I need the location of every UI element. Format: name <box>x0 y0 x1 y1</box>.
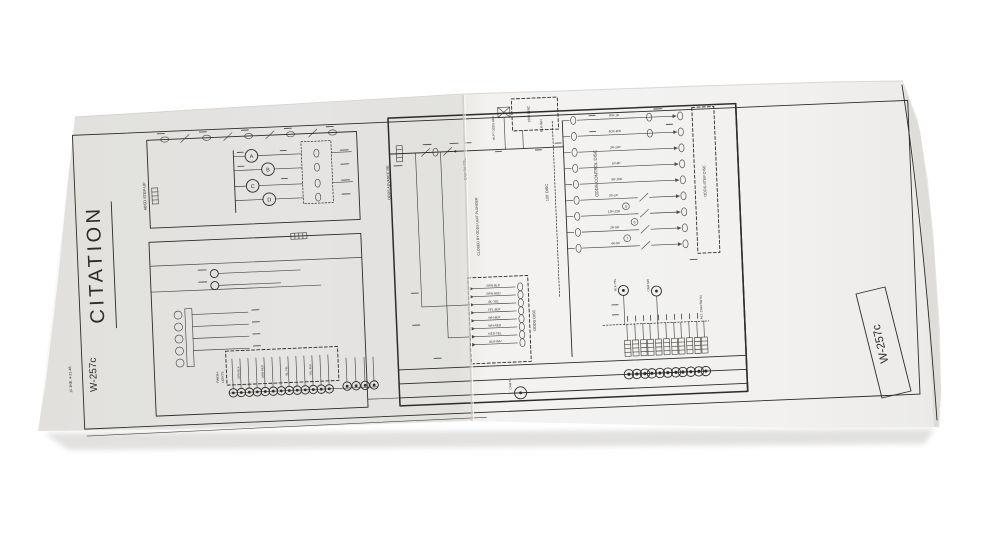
relay-c-label: C <box>251 184 255 190</box>
wire-label-7: BLK-WH <box>489 339 502 344</box>
ladder-label-7: 2R-5R <box>609 225 620 229</box>
ladder-label-5: 2R-1R <box>608 193 619 197</box>
cam-sw-label: CAM SW <box>646 279 651 292</box>
relay-b-label: B <box>266 167 270 173</box>
paper-shadow <box>45 429 935 450</box>
photo-of-schematic: CITATION W-257c 10 3NB. 4-21-48 ABCD STE… <box>0 0 1000 536</box>
lights-label: LIGHTS <box>220 371 224 383</box>
wire-label-2: BL-YEL <box>488 299 499 303</box>
step-digit-6: 6 <box>634 220 636 224</box>
wire-label-4: WH-BLK <box>488 315 501 320</box>
cam-pl-label: CAM P.L. <box>508 377 513 390</box>
stem-wire-label-1: GRN-BLK <box>236 366 241 379</box>
ladder-label-2: 2R-12R <box>609 145 622 150</box>
ladder-label-1: 5CR-WH <box>608 129 621 134</box>
ladder-label-3: 1R-8F <box>612 161 622 165</box>
relay-a-label: A <box>250 154 254 160</box>
step-digit-5: 5 <box>625 205 627 209</box>
stem-wire-label-3: BL-YEL <box>284 365 288 375</box>
ladder-label-0: WH-1R <box>609 113 620 117</box>
wire-label-6: RED-YEL <box>488 331 502 336</box>
blk-yel-label: BLK-YEL <box>613 278 618 291</box>
wire-label-1: GRN-RED <box>486 291 501 296</box>
wire-label-3: YEL-BLK <box>488 307 502 312</box>
ladder-label-8: 4R-5R <box>611 241 621 245</box>
disc-1000-label: 1000 DISC <box>527 105 532 122</box>
relay-d-label: D <box>267 197 271 203</box>
finish-label: FINISH <box>215 372 219 383</box>
wire-label-5: WH-RED <box>488 323 502 328</box>
step-digit-7: 7 <box>626 237 628 241</box>
disc-100-label: 100' DISC <box>545 184 550 202</box>
stem-wire-label-4: YEL-BLK <box>308 364 312 376</box>
wire-label-0: GRN-BLK <box>486 283 501 288</box>
ladder-label-4: 5R-15R <box>611 177 623 181</box>
blk-wh-label: BLK-WH <box>539 119 544 132</box>
ladder-label-6: 12R-22R <box>608 209 621 214</box>
drawing-number-left: W-257c <box>88 357 100 392</box>
stem-wire-label-2: GRN-RED <box>260 365 265 378</box>
